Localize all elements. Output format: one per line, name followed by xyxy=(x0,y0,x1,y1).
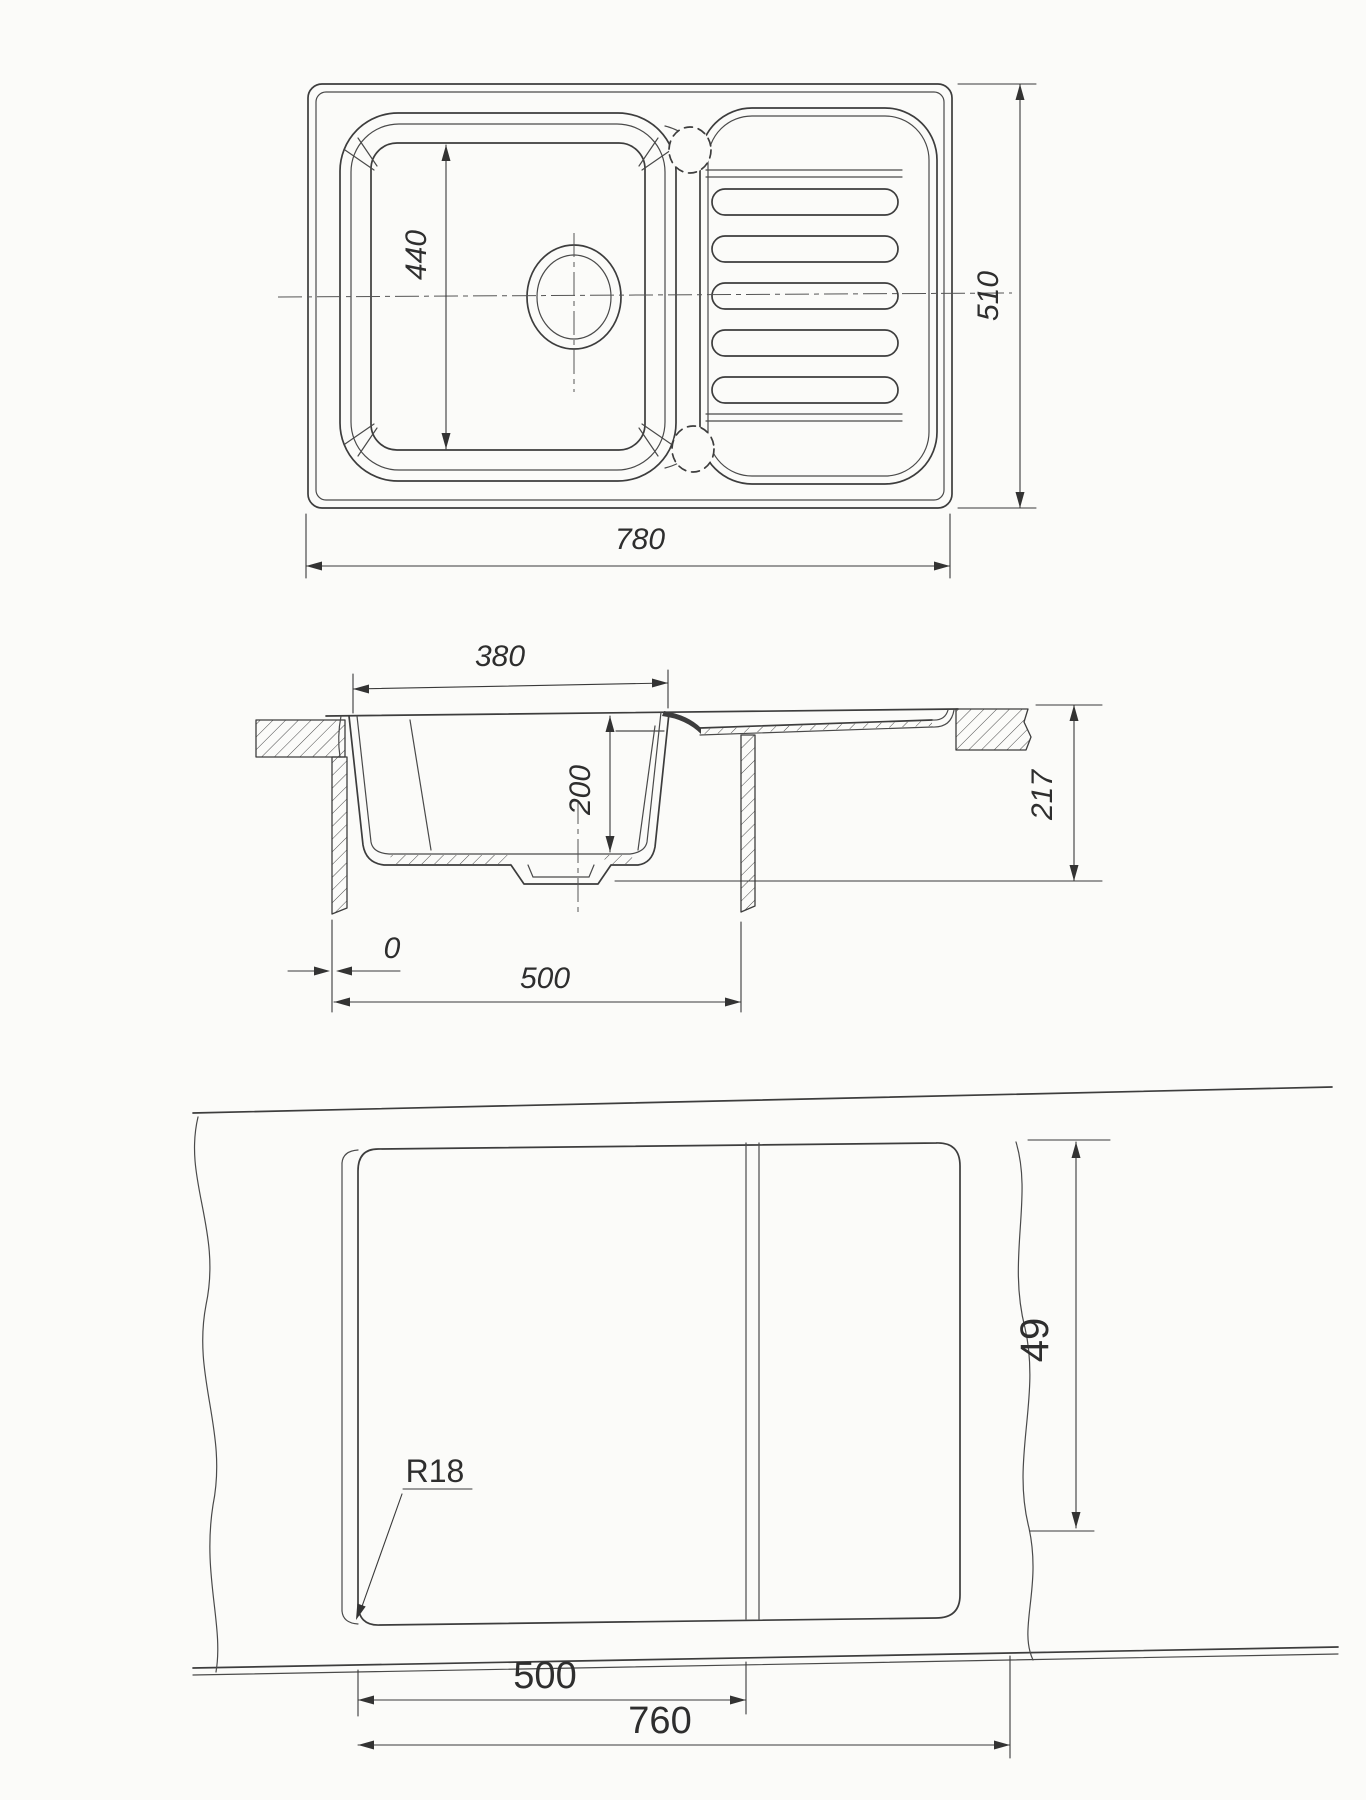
dim-label-380: 380 xyxy=(475,640,525,673)
drainboard-ribs xyxy=(706,170,902,421)
break-line-right xyxy=(1016,1142,1033,1660)
technical-drawing: 440 780 510 xyxy=(0,0,1366,1800)
dim-label-780: 780 xyxy=(615,523,665,556)
cutout-view: R18 49 500 760 xyxy=(193,1087,1338,1758)
section-view: 380 200 217 0 xyxy=(256,640,1102,1012)
dim-200: 200 xyxy=(564,716,615,852)
cabinet-wall-left xyxy=(332,757,347,914)
drainboard xyxy=(700,108,937,484)
drawing-sheet: 440 780 510 xyxy=(0,0,1366,1800)
dim-label-r18: R18 xyxy=(406,1453,465,1489)
dim-510: 510 xyxy=(958,84,1036,508)
bowl-section xyxy=(349,712,669,912)
countertop-left xyxy=(256,720,345,757)
cutout-rect xyxy=(342,1143,960,1625)
dim-label-440: 440 xyxy=(400,230,433,280)
dim-label-500-section: 500 xyxy=(520,962,570,995)
dim-label-760: 760 xyxy=(628,1700,691,1742)
break-line-left xyxy=(194,1117,217,1672)
sink-rim-line xyxy=(326,709,958,716)
cabinet-wall-right xyxy=(741,735,755,912)
dim-label-510: 510 xyxy=(972,271,1005,321)
dim-760: 760 xyxy=(358,1656,1010,1758)
plan-view: 440 780 510 xyxy=(278,84,1036,578)
tap-hole-bottom xyxy=(672,426,714,472)
dim-380: 380 xyxy=(353,640,668,713)
countertop-right xyxy=(956,709,1031,750)
tap-hole-top xyxy=(669,127,711,173)
bowl xyxy=(340,113,701,481)
dim-label-200: 200 xyxy=(564,765,597,816)
radius-callout: R18 xyxy=(356,1453,472,1620)
dim-label-217: 217 xyxy=(1026,769,1059,821)
countertop-front-edge xyxy=(193,1087,1332,1113)
dim-label-0: 0 xyxy=(384,932,401,965)
dim-0: 0 xyxy=(288,920,401,1012)
dim-780: 780 xyxy=(306,514,950,578)
dim-49: 49 xyxy=(1013,1140,1110,1531)
dim-label-500-cutout: 500 xyxy=(513,1655,576,1697)
dim-label-49: 49 xyxy=(1013,1318,1057,1363)
